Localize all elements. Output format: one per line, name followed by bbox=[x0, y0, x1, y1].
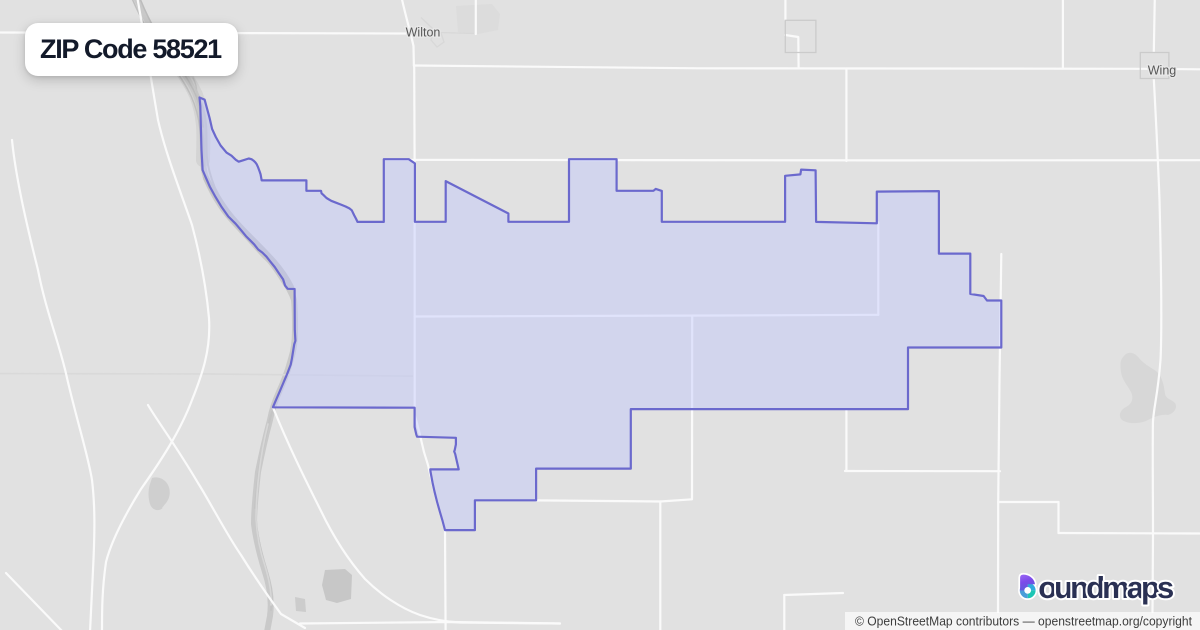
svg-text:Wilton: Wilton bbox=[406, 26, 441, 40]
svg-text:© OpenStreetMap contributors —: © OpenStreetMap contributors — openstree… bbox=[855, 614, 1192, 629]
svg-text:Wing: Wing bbox=[1148, 64, 1177, 78]
svg-text:oundmaps: oundmaps bbox=[1038, 570, 1174, 605]
